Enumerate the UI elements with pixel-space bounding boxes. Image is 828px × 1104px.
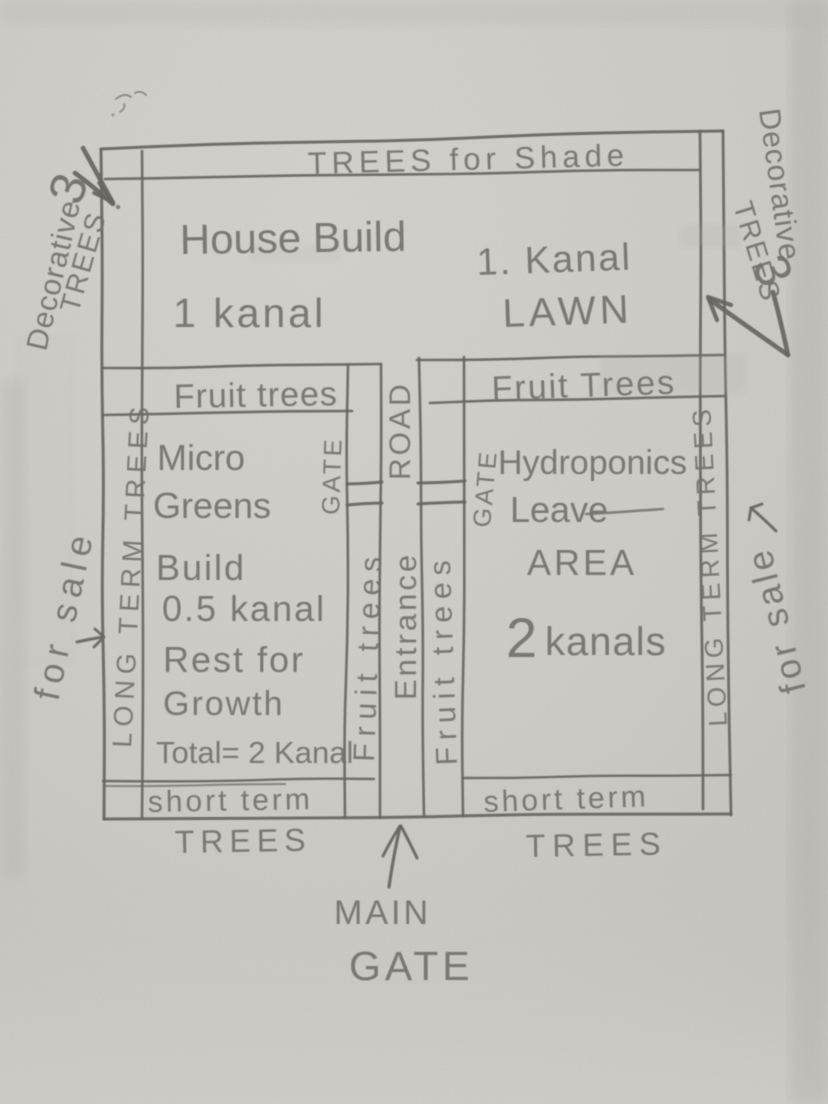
- svg-text:Fruit Trees: Fruit Trees: [491, 364, 677, 408]
- svg-text:Build: Build: [156, 547, 246, 588]
- svg-text:0.5 kanal: 0.5 kanal: [162, 588, 326, 629]
- svg-text:AREA: AREA: [527, 542, 637, 583]
- svg-text:MAIN: MAIN: [334, 894, 431, 932]
- svg-text:House Build: House Build: [179, 213, 406, 263]
- svg-text:TREES: TREES: [525, 826, 667, 864]
- svg-text:Greens: Greens: [153, 485, 271, 526]
- svg-text:GATE: GATE: [317, 436, 348, 515]
- svg-text:kanals: kanals: [545, 620, 667, 664]
- svg-text:Leave: Leave: [510, 489, 608, 530]
- svg-text:LAWN: LAWN: [502, 287, 634, 336]
- svg-text:short term: short term: [483, 780, 649, 819]
- svg-text:Hydroponics: Hydroponics: [498, 444, 687, 482]
- svg-text:ROAD: ROAD: [384, 381, 417, 480]
- svg-text:Micro: Micro: [157, 437, 245, 478]
- svg-text:TREES: TREES: [174, 822, 311, 860]
- svg-text:Rest for: Rest for: [163, 639, 305, 680]
- svg-text:2: 2: [506, 606, 537, 669]
- svg-text:Total= 2 Kanal: Total= 2 Kanal: [156, 735, 353, 770]
- svg-text:Fruit trees: Fruit trees: [173, 375, 338, 416]
- svg-text:1. Kanal: 1. Kanal: [476, 237, 633, 284]
- svg-text:short term: short term: [148, 783, 314, 819]
- svg-text:Entrance: Entrance: [388, 552, 423, 700]
- svg-text:GATE: GATE: [349, 943, 474, 989]
- svg-text:Growth: Growth: [163, 685, 285, 723]
- svg-text:1 kanal: 1 kanal: [173, 290, 326, 336]
